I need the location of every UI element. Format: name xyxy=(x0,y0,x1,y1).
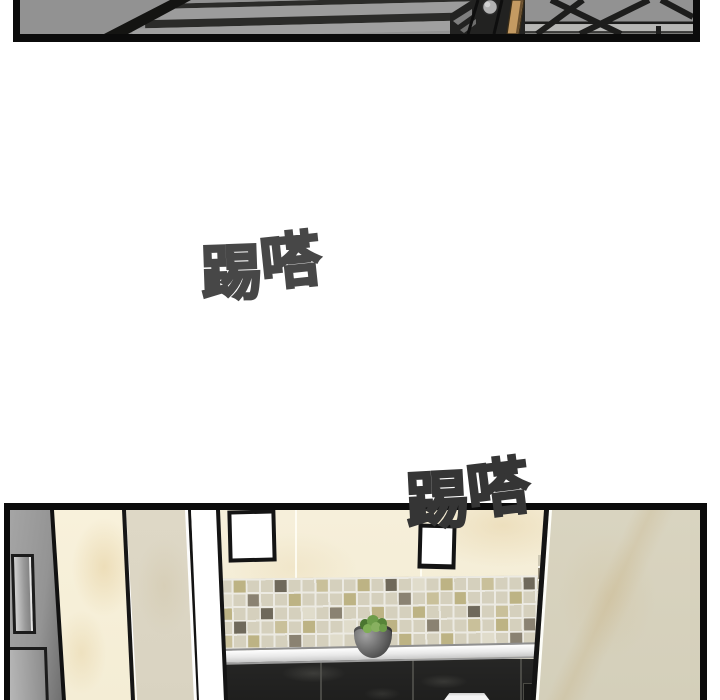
sfx-char: 踢 xyxy=(405,468,470,533)
mosaic-accent-tile xyxy=(358,579,370,591)
mosaic-accent-tile xyxy=(413,579,425,591)
mosaic-accent-tile xyxy=(303,607,315,619)
mosaic-accent-tile xyxy=(275,621,287,633)
panel-kitchen xyxy=(4,503,707,700)
mosaic-accent-tile xyxy=(331,635,343,647)
mosaic-accent-tile xyxy=(399,593,411,605)
sfx-char: 嗒 xyxy=(258,229,324,295)
counter-seam xyxy=(520,659,522,700)
mosaic-accent-tile xyxy=(261,608,273,620)
mosaic-accent-tile xyxy=(289,635,301,647)
sfx-char: 踢 xyxy=(200,243,262,305)
comic-page: 踢 嗒 踢 嗒 xyxy=(0,0,720,700)
mosaic-accent-tile xyxy=(454,592,466,604)
mosaic-accent-tile xyxy=(303,621,315,633)
mosaic-accent-tile xyxy=(248,636,260,648)
mosaic-accent-tile xyxy=(427,592,439,604)
mosaic-accent-tile xyxy=(233,580,245,592)
mosaic-accent-tile xyxy=(316,580,328,592)
sfx-text-footsteps-1: 踢 嗒 xyxy=(201,234,321,294)
railing-knob-highlight xyxy=(485,2,491,8)
mosaic-accent-tile xyxy=(482,578,494,590)
mosaic-accent-tile xyxy=(234,622,246,634)
mosaic-accent-tile xyxy=(385,579,397,591)
railing-knob xyxy=(483,0,498,15)
sfx-text-footsteps-2: 踢 嗒 xyxy=(406,462,530,524)
mosaic-accent-tile xyxy=(523,577,535,589)
mosaic-accent-tile xyxy=(496,619,508,631)
mosaic-accent-tile xyxy=(427,620,439,632)
mosaic-accent-tile xyxy=(247,594,259,606)
panel-stairwell xyxy=(13,0,700,42)
marble-column-right xyxy=(530,510,700,700)
mosaic-accent-tile xyxy=(524,619,536,631)
mosaic-accent-tile xyxy=(440,578,452,590)
counter-seam xyxy=(320,659,322,700)
wall-recess-panel-1 xyxy=(11,554,36,634)
mosaic-accent-tile xyxy=(510,591,522,603)
mosaic-accent-tile xyxy=(468,619,480,631)
mosaic-accent-tile xyxy=(289,594,301,606)
wall-seam xyxy=(295,510,297,584)
mosaic-accent-tile xyxy=(468,606,480,618)
mosaic-accent-tile xyxy=(413,606,425,618)
mosaic-accent-tile xyxy=(275,580,287,592)
mosaic-accent-tile xyxy=(496,605,508,617)
mosaic-accent-tile xyxy=(330,607,342,619)
sfx-char: 嗒 xyxy=(464,454,533,523)
counter-seam xyxy=(412,659,414,700)
mosaic-accent-tile xyxy=(344,593,356,605)
plant-leaves xyxy=(358,613,390,631)
stairwell-illustration xyxy=(20,0,693,34)
wall-recess-panel-2 xyxy=(6,647,49,700)
sink-edge xyxy=(440,693,492,700)
black-marble-counter xyxy=(218,659,560,700)
picture-frame-left xyxy=(227,509,276,562)
